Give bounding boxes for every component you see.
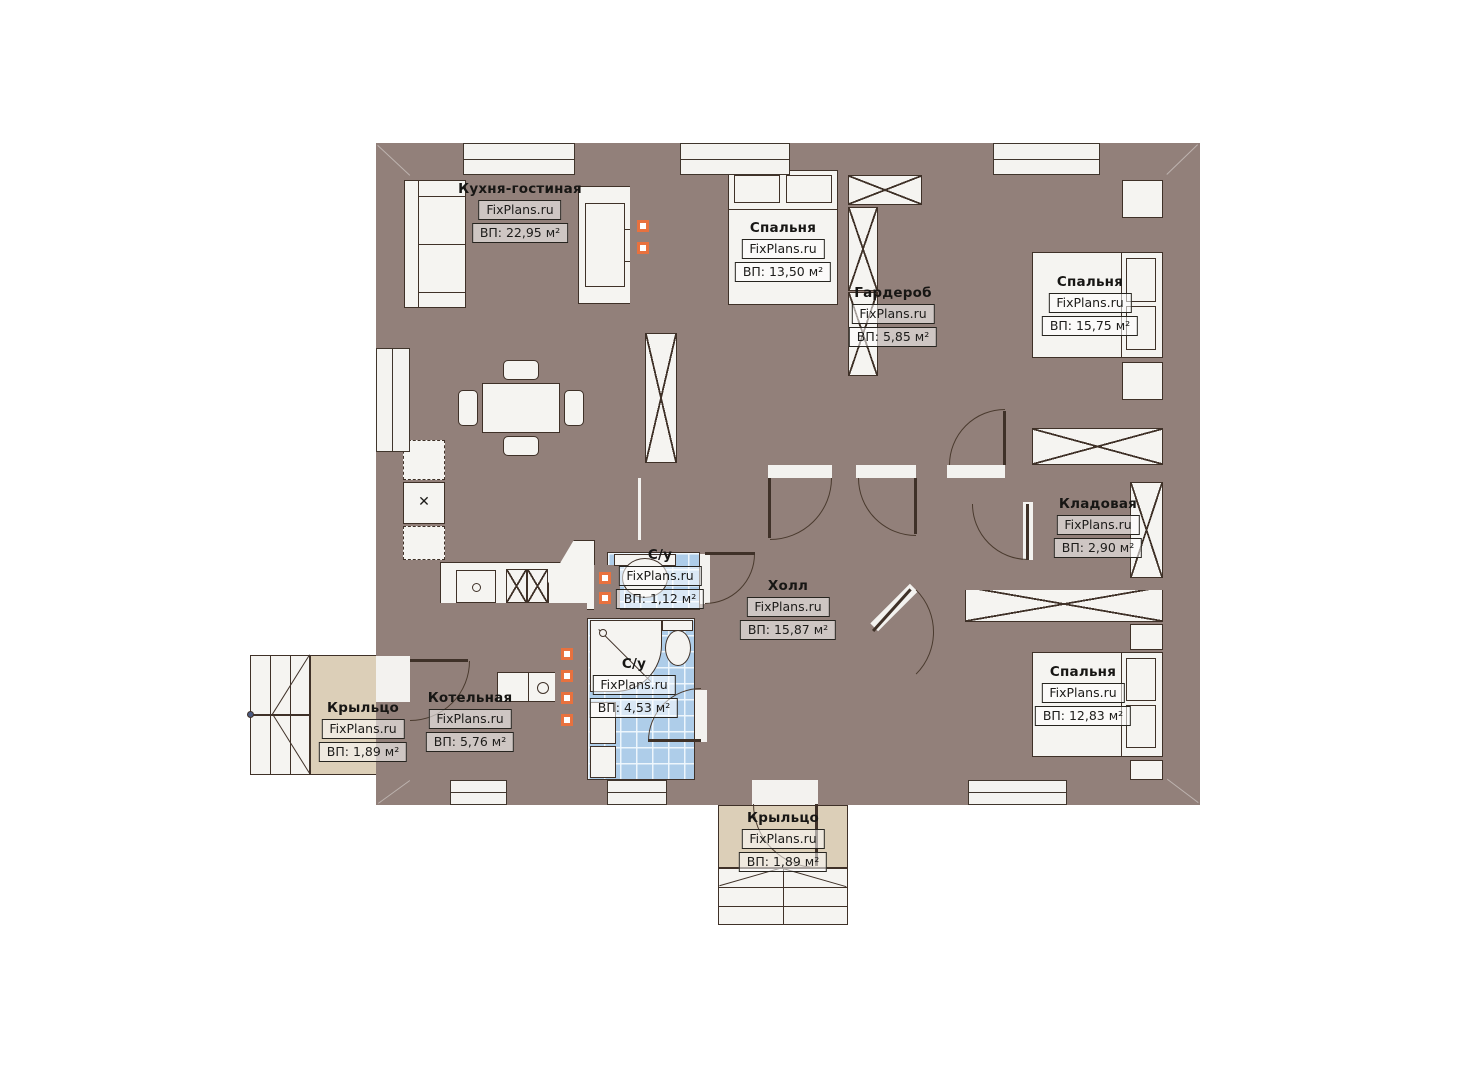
boiler-dial: [537, 682, 549, 694]
room-name: Спальня: [1050, 664, 1116, 680]
watermark: FixPlans.ru: [478, 200, 561, 220]
watermark: FixPlans.ru: [1048, 293, 1131, 313]
porch-bottom-stairs: [718, 868, 848, 925]
wardrobe-cabinet: [965, 586, 1163, 622]
stair-center-line: [783, 869, 784, 924]
fridge: ✕: [403, 482, 445, 524]
watermark: FixPlans.ru: [746, 597, 829, 617]
window-frame-line: [608, 792, 666, 793]
room-area: ВП: 15,87 м²: [740, 620, 836, 640]
chair: [503, 436, 539, 456]
window: [607, 780, 667, 805]
window: [463, 143, 575, 175]
room-area: ВП: 1,12 м²: [616, 589, 704, 609]
room-name: С/у: [648, 547, 672, 563]
bathroom-cabinet: [590, 746, 616, 778]
stair-direction-dot: [247, 711, 254, 718]
sofa-armrest-line: [418, 292, 465, 293]
room-area: ВП: 1,89 м²: [319, 742, 407, 762]
upper-cabinet: [403, 526, 445, 560]
chair: [503, 360, 539, 380]
room-name: Кухня-гостиная: [458, 181, 582, 197]
room-name: Спальня: [1057, 274, 1123, 290]
window: [968, 780, 1067, 805]
fridge-x-icon: ✕: [418, 494, 430, 510]
room-label-wc-big: С/у FixPlans.ru ВП: 4,53 м²: [590, 656, 678, 718]
wardrobe-cabinet: [645, 333, 677, 463]
tv-screen: [585, 203, 625, 287]
vent-shaft: [561, 648, 573, 660]
door-leaf: [1026, 504, 1029, 560]
interior-wall: [865, 632, 877, 780]
interior-wall: [920, 578, 1167, 590]
room-area: ВП: 12,83 м²: [1035, 706, 1131, 726]
room-area: ВП: 13,50 м²: [735, 262, 831, 282]
room-label-storage: Кладовая FixPlans.ru ВП: 2,90 м²: [1054, 496, 1142, 558]
room-label-porch-bottom: Крыльцо FixPlans.ru ВП: 1,89 м²: [739, 810, 827, 872]
sink-drain: [472, 583, 481, 592]
room-label-wc-small: С/у FixPlans.ru ВП: 1,12 м²: [616, 547, 704, 609]
vent-shaft: [637, 220, 649, 232]
room-name: Кладовая: [1059, 496, 1137, 512]
vent-shaft: [599, 572, 611, 584]
room-label-bedroom-1: Спальня FixPlans.ru ВП: 13,50 м²: [735, 220, 831, 282]
window: [450, 780, 507, 805]
entrance-door-opening: [752, 780, 818, 805]
room-name: Котельная: [428, 690, 513, 706]
nightstand: [1130, 624, 1163, 650]
chair: [458, 390, 478, 426]
window-frame-line: [969, 792, 1066, 793]
watermark: FixPlans.ru: [428, 709, 511, 729]
watermark: FixPlans.ru: [618, 566, 701, 586]
dining-table: [482, 383, 560, 433]
boiler-top-wall: [410, 603, 555, 615]
vent-shaft: [637, 242, 649, 254]
room-area: ВП: 1,89 м²: [739, 852, 827, 872]
window: [680, 143, 790, 175]
vent-shaft: [561, 692, 573, 704]
room-area: ВП: 4,53 м²: [590, 698, 678, 718]
boiler-divider: [528, 673, 529, 701]
window: [993, 143, 1100, 175]
watermark: FixPlans.ru: [592, 675, 675, 695]
room-area: ВП: 15,75 м²: [1042, 316, 1138, 336]
door-opening: [947, 465, 1005, 478]
room-name: Крыльцо: [747, 810, 819, 826]
watermark: FixPlans.ru: [1056, 515, 1139, 535]
chair: [564, 390, 584, 426]
door-leaf: [648, 739, 701, 742]
watermark: FixPlans.ru: [1041, 683, 1124, 703]
room-name: Крыльцо: [327, 700, 399, 716]
room-label-boiler: Котельная FixPlans.ru ВП: 5,76 м²: [426, 690, 514, 752]
window-frame-line: [464, 159, 574, 160]
wardrobe-cabinet: [848, 175, 922, 205]
door-opening: [768, 465, 832, 478]
room-area: ВП: 5,76 м²: [426, 732, 514, 752]
bed-line: [729, 209, 837, 210]
shower-drain: [599, 629, 607, 637]
sofa: [404, 180, 466, 308]
watermark: FixPlans.ru: [741, 239, 824, 259]
window-frame-line: [392, 349, 393, 451]
nightstand: [1130, 760, 1163, 780]
window: [376, 348, 410, 452]
window-frame-line: [451, 792, 506, 793]
stove-burner: [506, 569, 527, 603]
door-leaf: [705, 552, 755, 555]
nightstand: [1122, 180, 1163, 218]
door-leaf: [768, 478, 771, 538]
room-name: Холл: [768, 578, 808, 594]
room-area: ВП: 2,90 м²: [1054, 538, 1142, 558]
door-leaf: [1003, 411, 1006, 465]
room-name: Спальня: [750, 220, 816, 236]
sofa-cushion-line: [418, 244, 465, 245]
door-opening: [856, 465, 916, 478]
room-label-wardrobe: Гардероб FixPlans.ru ВП: 5,85 м²: [849, 285, 937, 347]
stove-burner: [527, 569, 548, 603]
watermark: FixPlans.ru: [741, 829, 824, 849]
wardrobe-cabinet: [848, 207, 878, 291]
room-label-bedroom-2: Спальня FixPlans.ru ВП: 15,75 м²: [1042, 274, 1138, 336]
room-label-hall: Холл FixPlans.ru ВП: 15,87 м²: [740, 578, 836, 640]
vent-shaft: [561, 670, 573, 682]
pillow: [786, 175, 832, 203]
room-label-kitchen-living: Кухня-гостиная FixPlans.ru ВП: 22,95 м²: [458, 181, 582, 243]
room-label-bedroom-3: Спальня FixPlans.ru ВП: 12,83 м²: [1035, 664, 1131, 726]
room-name: С/у: [622, 656, 646, 672]
window-frame-line: [994, 159, 1099, 160]
interior-wall: [838, 175, 848, 465]
stair-direction-line: [250, 714, 310, 716]
room-name: Гардероб: [854, 285, 931, 301]
door-leaf: [914, 478, 917, 534]
watermark: FixPlans.ru: [851, 304, 934, 324]
room-area: ВП: 5,85 м²: [849, 327, 937, 347]
room-area: ВП: 22,95 м²: [472, 223, 568, 243]
wardrobe-cabinet: [1032, 428, 1163, 465]
nightstand: [1122, 362, 1163, 400]
porch-door-opening: [376, 656, 410, 702]
watermark: FixPlans.ru: [321, 719, 404, 739]
door-leaf: [410, 659, 468, 662]
room-label-porch-left: Крыльцо FixPlans.ru ВП: 1,89 м²: [319, 700, 407, 762]
floor-plan: ✕: [0, 0, 1473, 1080]
vent-shaft: [599, 592, 611, 604]
pillow: [734, 175, 780, 203]
kitchen-sink: [456, 570, 496, 603]
vent-shaft: [561, 714, 573, 726]
window-frame-line: [681, 159, 789, 160]
tv-stand: [578, 186, 638, 304]
